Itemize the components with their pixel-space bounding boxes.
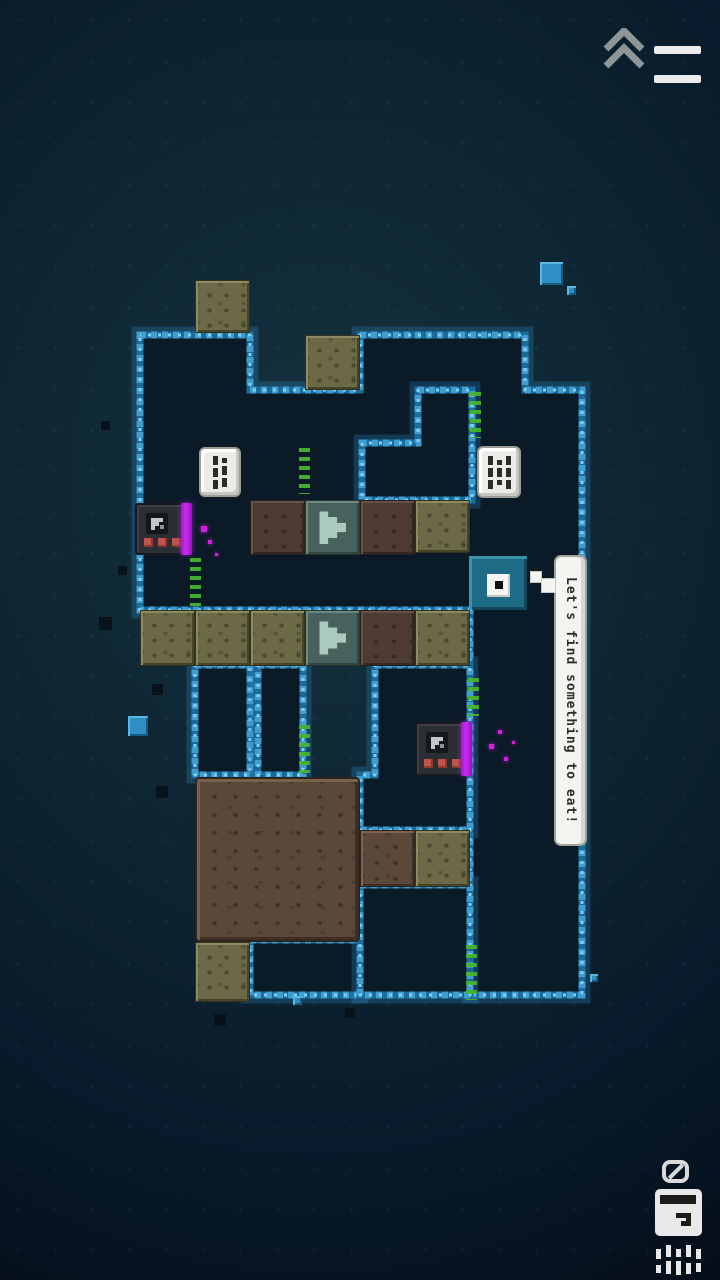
dice-mark [213, 468, 218, 477]
creature-flag-glyph [151, 518, 155, 522]
dice-mark [213, 480, 218, 489]
khaki-dirt-tile [415, 610, 470, 666]
trail-dash [676, 1249, 681, 1257]
fridge-icon [655, 1189, 702, 1236]
trail-dash [656, 1265, 661, 1273]
magenta-particle [201, 526, 207, 532]
trail-dash [666, 1245, 671, 1257]
grass-tuft [299, 725, 310, 773]
creature-purple-strip [181, 503, 192, 555]
creature-light [172, 538, 181, 547]
fridge-bar [660, 1195, 696, 1204]
arrow-right-icon [319, 511, 346, 544]
bottom-pocket [250, 940, 360, 995]
grass-tuft [190, 558, 201, 606]
dark-particle [214, 1014, 226, 1026]
creature-purple-strip [461, 722, 472, 776]
magenta-particle [498, 730, 502, 734]
creature-face-panel [146, 513, 168, 534]
dark-particle [345, 1008, 355, 1018]
floating-cyan-square [567, 286, 576, 295]
dice-block[interactable] [199, 447, 241, 497]
player-block[interactable] [469, 556, 527, 610]
browndark-dirt-tile [360, 610, 415, 666]
dark-particle [156, 786, 168, 798]
creature-flag-glyph [431, 737, 435, 741]
dice-mark [506, 480, 511, 489]
creature-face-panel [426, 732, 448, 753]
creature-light [144, 538, 153, 547]
grass-tuft [466, 945, 477, 1000]
shaft-left [195, 665, 250, 775]
speech-bubble-tail [541, 578, 556, 593]
dice-mark [497, 468, 502, 477]
collapse-button[interactable] [601, 28, 647, 70]
dark-particle [101, 421, 110, 430]
browndark-dirt-tile [250, 500, 305, 555]
khaki-dirt-tile [250, 610, 305, 666]
grass-tuft [468, 678, 479, 716]
hamburger-icon [654, 46, 701, 54]
creature-light [158, 538, 167, 547]
dice-mark [222, 466, 227, 475]
floating-cyan-square [540, 262, 563, 285]
bottom-right-pocket [360, 885, 470, 995]
khaki-dirt-tile [305, 335, 360, 390]
arrow-right-icon [319, 622, 346, 655]
khaki-dirt-tile [415, 500, 470, 553]
player-pupil [495, 581, 503, 589]
level-area[interactable] [0, 0, 720, 1280]
trail-dash [686, 1245, 691, 1257]
dice-mark [497, 460, 502, 465]
grass-tuft [299, 448, 310, 494]
creature-block[interactable] [135, 503, 183, 555]
dark-particle [99, 617, 112, 630]
floating-cyan-square [293, 996, 302, 1005]
khaki-dirt-tile [195, 280, 250, 333]
brown-dirt-tile [360, 830, 415, 887]
no-symbol-icon [662, 1160, 689, 1183]
dice-mark [488, 468, 493, 477]
dice-mark-column [497, 460, 502, 485]
magenta-particle [489, 744, 494, 749]
floating-cyan-square [128, 716, 148, 736]
dice-mark-column [488, 456, 493, 489]
magenta-particle [512, 741, 515, 744]
arrow-tile [305, 500, 360, 555]
menu-button[interactable] [654, 44, 701, 85]
trail-dash [666, 1261, 671, 1274]
trail-dash [686, 1263, 691, 1274]
trail-dash [696, 1249, 701, 1259]
dashed-trail-icon [656, 1245, 704, 1277]
magenta-particle [215, 553, 218, 556]
grass-tuft [470, 392, 481, 438]
dice-mark [506, 468, 511, 477]
dice-mark [497, 480, 502, 485]
dice-mark [506, 456, 511, 465]
dice-mark-column [213, 456, 218, 489]
brownmass-dirt-tile [195, 777, 360, 942]
dice-mark-column [222, 458, 227, 487]
trail-dash [676, 1261, 681, 1275]
creature-lights [424, 759, 461, 768]
dark-particle [118, 566, 127, 575]
trail-dash [656, 1249, 661, 1259]
dice-mark [222, 478, 227, 487]
double-chevron-up-icon [601, 28, 647, 70]
creature-lights [144, 538, 181, 547]
creature-block[interactable] [415, 722, 463, 776]
speech-bubble: Let's find something to eat! [554, 555, 587, 846]
khaki-dirt-tile [140, 610, 195, 666]
arrow-tile [305, 610, 360, 666]
dice-mark [213, 456, 218, 465]
creature-light [452, 759, 461, 768]
fridge-glyph [676, 1213, 681, 1218]
dice-mark [488, 480, 493, 489]
game-screen: Let's find something to eat! [0, 0, 720, 1280]
khaki-dirt-tile [195, 610, 250, 666]
dice-block[interactable] [477, 446, 521, 498]
dark-particle [152, 684, 163, 695]
objective-indicator [650, 1155, 710, 1275]
speech-bubble-text: Let's find something to eat! [563, 577, 578, 824]
creature-light [424, 759, 433, 768]
browndark-dirt-tile [360, 500, 415, 555]
magenta-particle [504, 757, 508, 761]
floating-cyan-square [590, 974, 598, 982]
player-eye [487, 574, 510, 597]
magenta-particle [208, 540, 212, 544]
dice-mark [488, 456, 493, 465]
shaft-right [258, 665, 303, 775]
creature-light [438, 759, 447, 768]
dice-mark [222, 458, 227, 463]
khaki-dirt-tile [415, 830, 470, 887]
khaki-dirt-tile [195, 942, 250, 1002]
hamburger-icon [654, 75, 701, 83]
trail-dash [696, 1263, 701, 1272]
dice-mark-column [506, 456, 511, 489]
